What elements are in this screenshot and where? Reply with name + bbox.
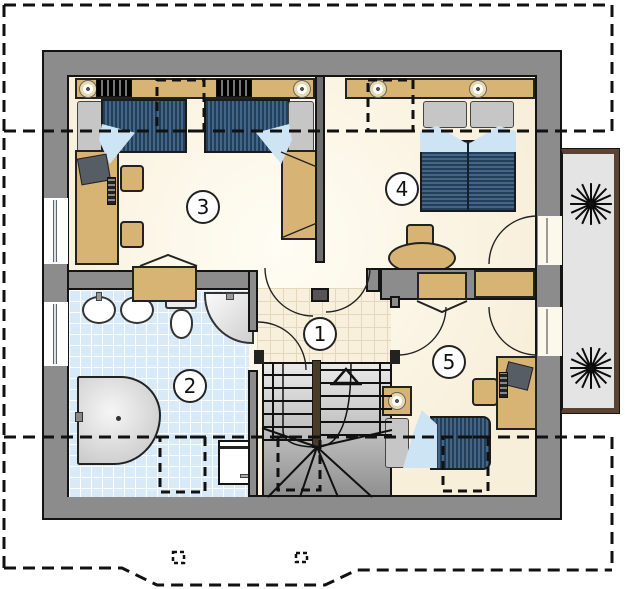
plant-icon <box>569 344 613 392</box>
keyboard <box>499 372 508 398</box>
wall-hall-room4 <box>366 268 380 292</box>
desk-chair <box>472 378 498 406</box>
balcony-door-room5 <box>538 307 562 356</box>
balcony-door-room4 <box>538 216 562 265</box>
window-bathroom-glazing <box>53 304 57 364</box>
keyboard <box>107 177 116 205</box>
radiator <box>96 79 132 97</box>
radiator <box>216 79 252 97</box>
computer-monitor <box>77 154 111 186</box>
room-label-bedroom-3: 3 <box>186 190 220 224</box>
room-label-bathroom: 2 <box>173 369 207 403</box>
wall-bathroom-hall-upper <box>248 270 258 332</box>
wardrobe-room5 <box>417 272 467 300</box>
balcony-door-room5-threshold <box>546 309 548 354</box>
desk-chair <box>120 165 144 192</box>
room-label-bedroom-5: 5 <box>432 345 466 379</box>
desk-chair <box>120 221 144 248</box>
bed-pillow <box>288 101 314 152</box>
floor-plan: 1 2 3 4 5 <box>0 0 625 589</box>
bathtub-tap <box>75 412 83 422</box>
lamp-icon <box>388 392 406 410</box>
room-label-hall: 1 <box>303 317 337 351</box>
sink-tap <box>96 292 102 301</box>
bed-room5 <box>430 416 491 470</box>
wardrobe-room4 <box>474 270 535 298</box>
wall-hall-room5-stub-bottom <box>390 350 400 364</box>
window-room3-glazing <box>53 200 57 262</box>
closet-room3-bottom <box>132 266 197 302</box>
wall-hall-stairs-stub <box>254 350 264 364</box>
bed-center-split <box>467 141 469 211</box>
lamp-icon <box>469 80 487 98</box>
wall-stub-hall <box>311 288 329 302</box>
wall-room3-room4 <box>315 75 325 263</box>
balcony-door-room4-threshold <box>546 218 548 263</box>
lamp-icon <box>79 80 97 98</box>
plant-icon <box>569 180 613 228</box>
wall-hall-room5-stub-top <box>390 296 400 308</box>
bathtub-drain <box>116 416 121 421</box>
lamp-icon <box>293 80 311 98</box>
stair-center-rail <box>312 360 321 448</box>
bed-pillow <box>77 101 103 152</box>
wardrobe-room3 <box>281 150 317 240</box>
staircase <box>262 362 392 497</box>
bed-pillow <box>470 101 514 128</box>
lamp-icon <box>369 80 387 98</box>
bed-pillow <box>423 101 467 128</box>
sink-tap <box>226 293 234 300</box>
room-label-bedroom-4: 4 <box>385 172 419 206</box>
wall-bathroom-hall-lower <box>248 370 258 497</box>
toilet-bowl <box>170 309 193 339</box>
